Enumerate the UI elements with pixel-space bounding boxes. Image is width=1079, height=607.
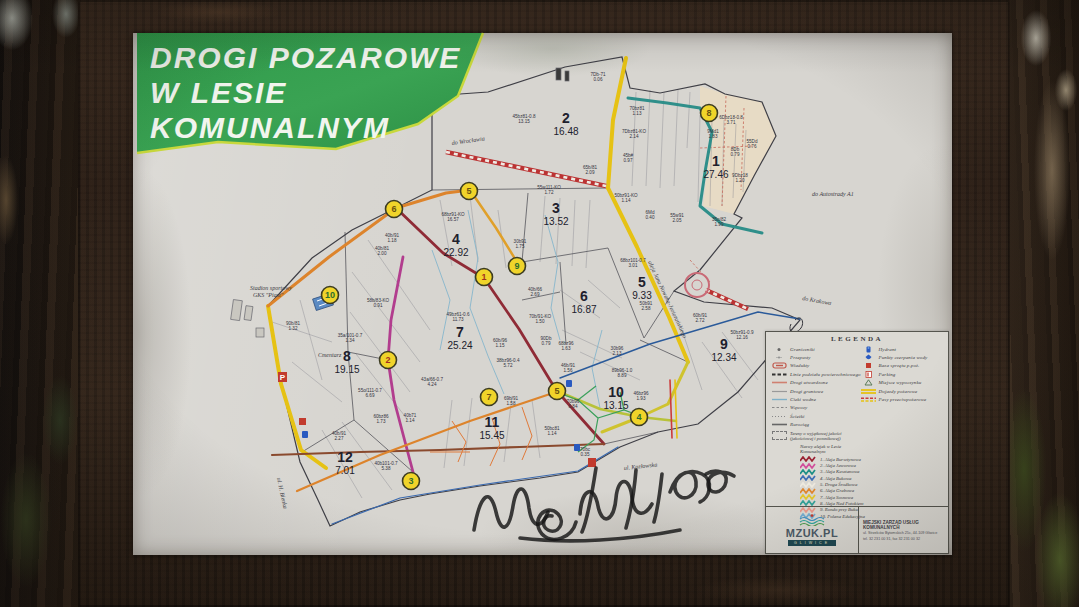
legend-item-label: Cieki wodne (790, 397, 816, 402)
dotsgray-symbol (772, 413, 787, 420)
legend-item-label: Dojazdy pożarowe (879, 389, 918, 394)
legend-item: Drogi gruntowe (772, 387, 861, 395)
legend-item-label: Drogi utwardzone (790, 380, 828, 385)
legend-item-label: Wąwozy (790, 405, 807, 410)
legend-item: Pasy przeciwpożarowe (861, 395, 945, 403)
legend-item-label: Miejsce wypoczynku (879, 380, 922, 385)
org-name: MIEJSKI ZARZĄD USŁUG KOMUNALNYCH (863, 520, 944, 530)
legend-right-column: HydrantPunkty czerpania wodyBaza sprzętu… (861, 345, 945, 429)
dashgray-symbol (772, 404, 787, 411)
legend-item-label: Baza sprzętu p.poż. (879, 363, 920, 368)
legend-item-label: Linie podziału powierzchniowego (790, 372, 861, 377)
street-color-zigzag (800, 475, 816, 481)
street-name-label: 3. Aleja Kasztanowa (820, 469, 860, 474)
street-color-zigzag (800, 469, 816, 475)
water-symbol (861, 354, 876, 361)
legend-item: Miejsce wypoczynku (861, 379, 945, 387)
mzuk-logo-waves-icon (798, 514, 826, 526)
legend-item-label: Rurociąg (790, 422, 809, 427)
legend-item-label: Drogi gruntowe (790, 389, 823, 394)
legend-item: Wąwozy (772, 404, 861, 412)
legend-item-label: Punkty czerpania wody (879, 355, 928, 360)
dashed-area-symbol (772, 431, 787, 440)
street-name-label: 2. Aleja Jaworowa (820, 463, 856, 468)
bracket-symbol (772, 362, 787, 369)
legend-note: Tereny o wyjątkowej jakości (jakościowej… (766, 429, 948, 441)
organization-info: MIEJSKI ZARZĄD USŁUG KOMUNALNYCH ul. Str… (859, 507, 948, 553)
org-phone: tel. 32 231 00 31, fax 32 231 00 32 (863, 537, 944, 541)
parking-symbol (861, 371, 876, 378)
legend-item-label: Pasy przeciwpożarowe (879, 397, 927, 402)
legend-item: Rurociąg (772, 421, 861, 429)
legend-box: LEGENDA GranicznikiPrzepustyWiaduktyLini… (765, 331, 949, 554)
legend-item: Ścieżki (772, 412, 861, 420)
dot-symbol (772, 346, 787, 353)
legend-item-label: Wiadukty (790, 363, 809, 368)
legend-item-label: Parking (879, 372, 896, 377)
linedark-symbol (772, 421, 787, 428)
street-name-label: 4. Aleja Bukowa (820, 476, 852, 481)
yellowlines-symbol (861, 388, 876, 395)
legend-item: Graniczniki (772, 345, 861, 353)
streets-header-line1: Nazwy alejek w Lesie (800, 444, 841, 449)
mzuk-logo-text: MZUK.PL (786, 527, 838, 539)
smalldot-symbol (772, 354, 787, 361)
legend-note-line2: (jakościowej i pomnikowej) (790, 436, 841, 441)
legend-item: Cieki wodne (772, 395, 861, 403)
street-name-label: 5. Droga Środkowa (820, 482, 857, 487)
street-color-zigzag (800, 488, 816, 494)
street-color-zigzag (800, 463, 816, 469)
legend-item-label: Graniczniki (790, 347, 815, 352)
legend-item-label: Hydrant (879, 347, 896, 352)
linegray-symbol (772, 388, 787, 395)
legend-item: Linie podziału powierzchniowego (772, 370, 861, 378)
legend-item: Przepusty (772, 353, 861, 361)
legend-item: Parking (861, 370, 945, 378)
dashbold-symbol (772, 371, 787, 378)
legend-footer: MZUK.PL GLIWICE MIEJSKI ZARZĄD USŁUG KOM… (766, 506, 948, 553)
org-address: ul. Strzelców Bytomskich 25c, 44-109 Gli… (863, 531, 944, 535)
legend-item-label: Ścieżki (790, 414, 805, 419)
redyellow-symbol (861, 396, 876, 403)
street-name-label: 1. Aleja Bursztynowa (820, 457, 861, 462)
legend-item: Punkty czerpania wody (861, 353, 945, 361)
street-color-zigzag (800, 482, 816, 488)
street-name-label: 6. Aleja Grabowa (820, 488, 854, 493)
background-trees-right (1008, 0, 1079, 607)
legend-left-column: GranicznikiPrzepustyWiaduktyLinie podzia… (772, 345, 861, 429)
linered-symbol (772, 379, 787, 386)
legend-item: Drogi utwardzone (772, 379, 861, 387)
rest-symbol (861, 379, 876, 386)
street-color-zigzag (800, 494, 816, 500)
mzuk-logo: MZUK.PL GLIWICE (766, 507, 859, 553)
mzuk-logo-city: GLIWICE (788, 540, 836, 546)
redbox-symbol (861, 362, 876, 369)
legend-item: Wiadukty (772, 362, 861, 370)
legend-item: Dojazdy pożarowe (861, 387, 945, 395)
legend-item-label: Przepusty (790, 355, 811, 360)
street-color-zigzag (800, 456, 816, 462)
photo-of-forest-map-sign: P 7Db-710.0645bz81-0.813.1570bz811.137Db… (0, 0, 1079, 607)
lineblue-symbol (772, 396, 787, 403)
legend-title: LEGENDA (766, 335, 948, 343)
streets-header-line2: Komunalnym (800, 449, 826, 454)
legend-item: Hydrant (861, 345, 945, 353)
legend-item: Baza sprzętu p.poż. (861, 362, 945, 370)
street-name-label: 7. Aleja Sosnowa (820, 495, 853, 500)
background-trees-left (0, 0, 82, 607)
hydrant-symbol (861, 346, 876, 353)
